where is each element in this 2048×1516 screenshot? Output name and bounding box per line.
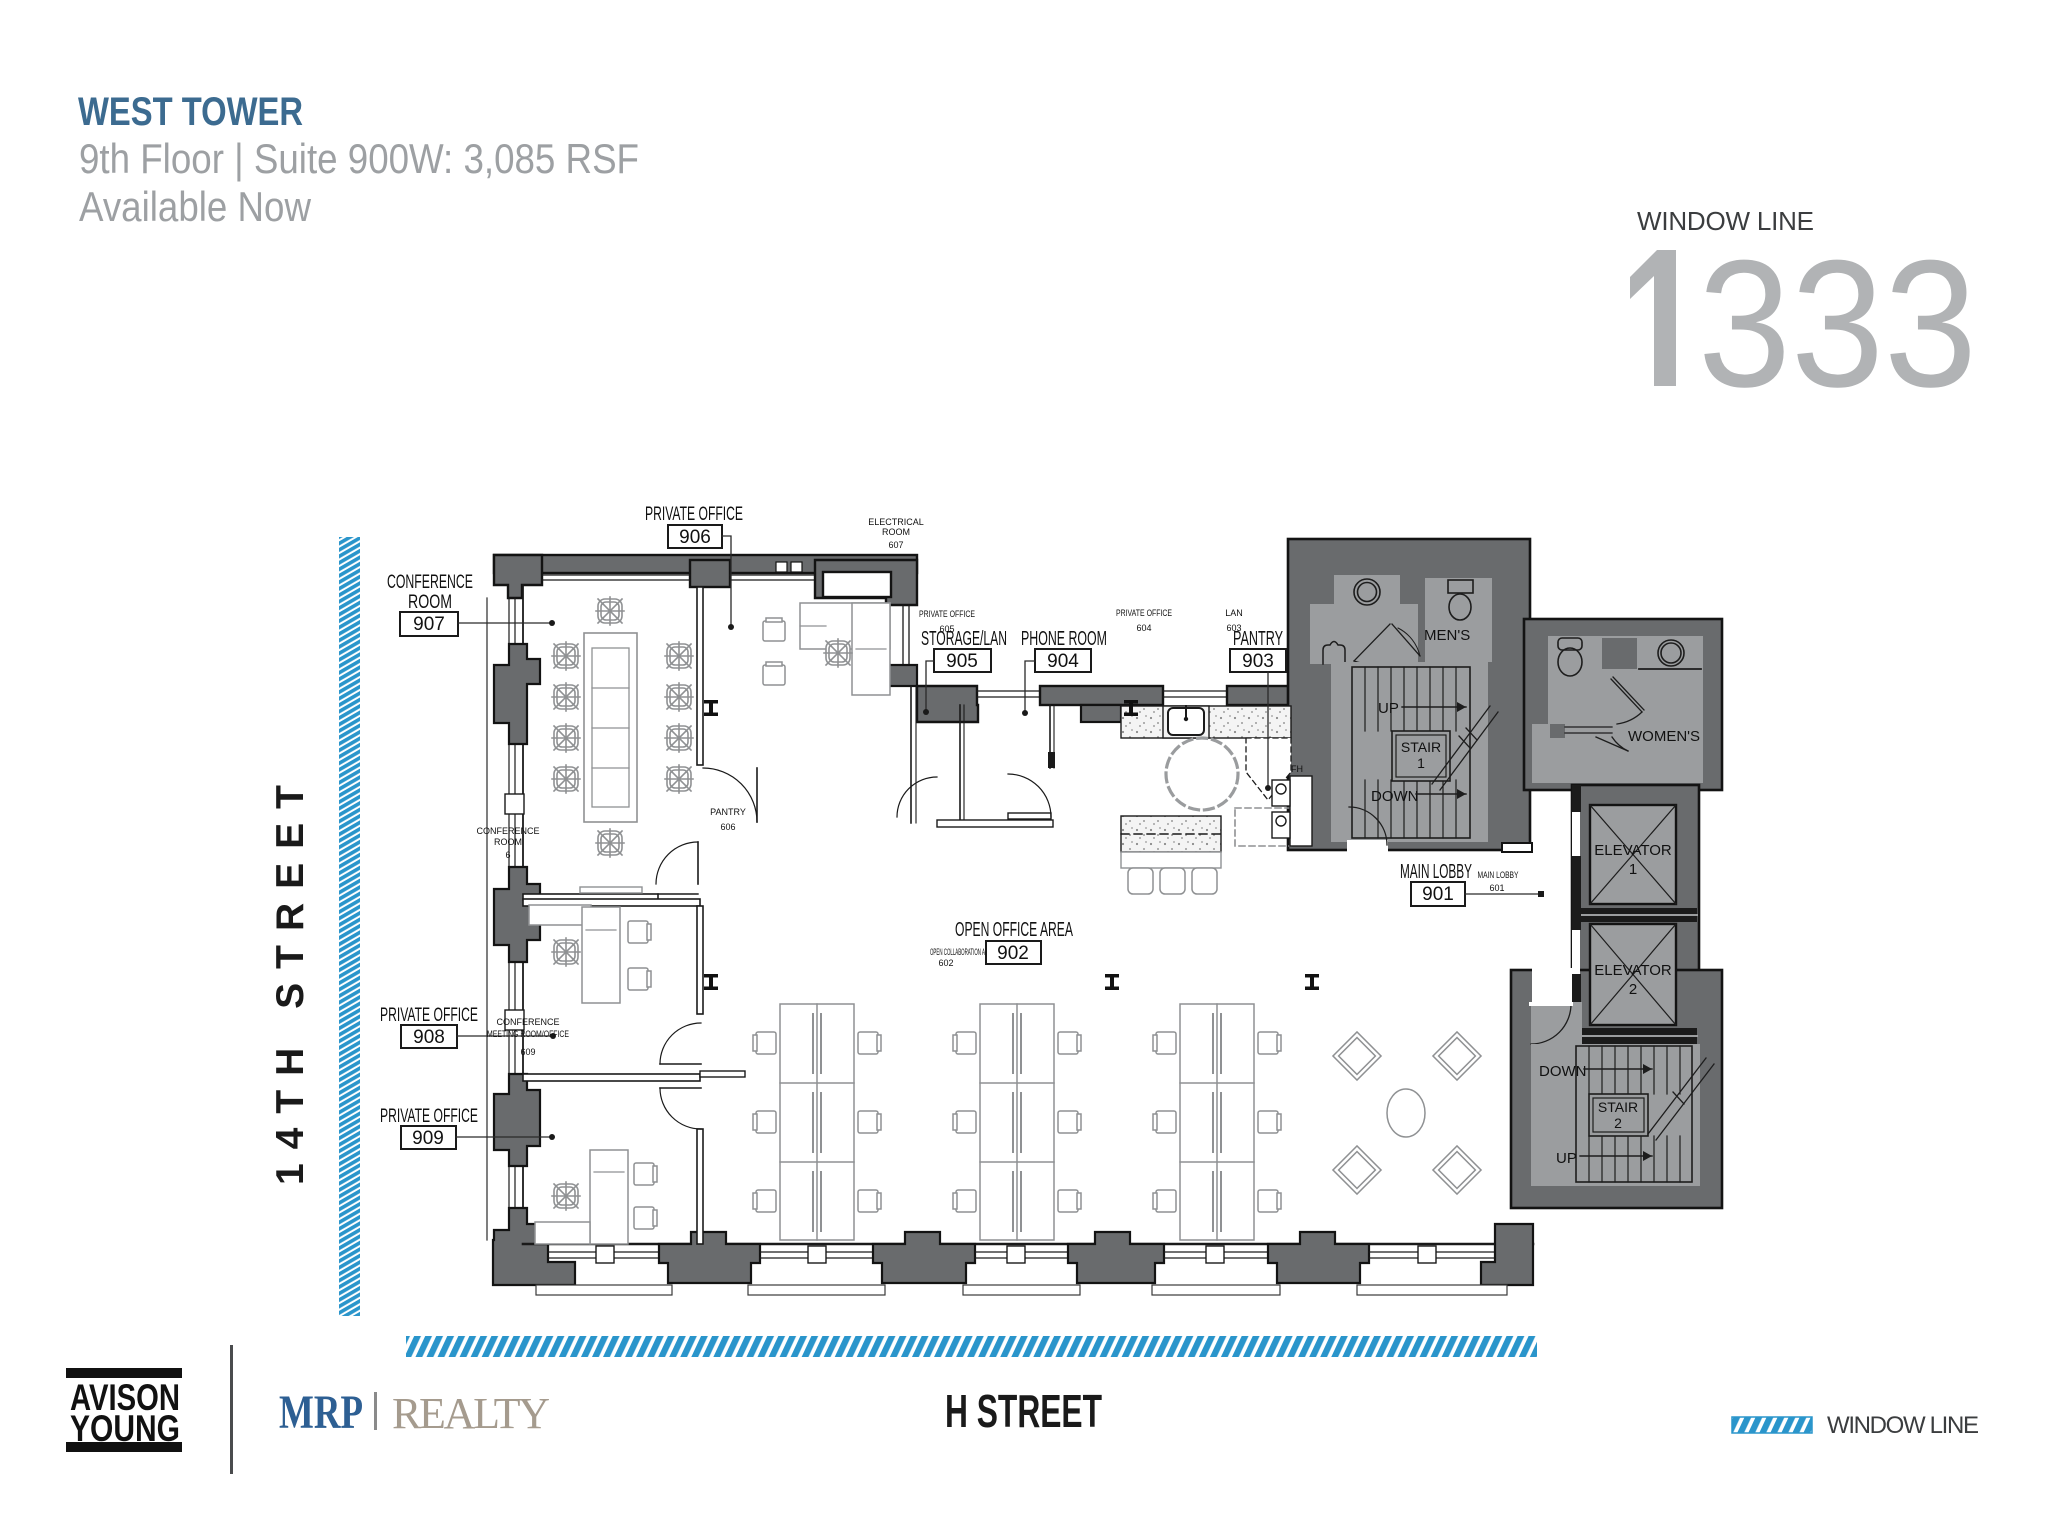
svg-text:606: 606 [720, 822, 735, 832]
svg-text:1: 1 [1417, 755, 1425, 771]
svg-text:MEETING ROOM/OFFICE: MEETING ROOM/OFFICE [487, 1029, 569, 1039]
svg-text:601: 601 [1489, 883, 1504, 893]
svg-text:PANTRY: PANTRY [710, 807, 746, 817]
svg-text:PANTRY: PANTRY [1233, 628, 1283, 650]
svg-text:ROOM: ROOM [408, 592, 452, 613]
svg-text:906: 906 [679, 527, 711, 548]
svg-text:908: 908 [413, 1027, 445, 1048]
svg-text:OPEN OFFICE AREA: OPEN OFFICE AREA [955, 919, 1073, 941]
svg-text:PRIVATE OFFICE: PRIVATE OFFICE [380, 1005, 478, 1026]
svg-text:FH: FH [1291, 764, 1303, 774]
svg-text:WEST TOWER: WEST TOWER [78, 90, 303, 134]
svg-text:9th Floor | Suite 900W: 3,085: 9th Floor | Suite 900W: 3,085 RSF [79, 135, 639, 182]
svg-text:STAIR: STAIR [1598, 1099, 1638, 1115]
svg-text:PRIVATE OFFICE: PRIVATE OFFICE [380, 1106, 478, 1127]
svg-text:ROOM: ROOM [882, 527, 910, 537]
svg-text:STORAGE/LAN: STORAGE/LAN [921, 628, 1007, 650]
svg-text:MRP: MRP [279, 1386, 363, 1439]
svg-text:ROOM: ROOM [494, 837, 522, 847]
svg-text:903: 903 [1242, 651, 1274, 672]
svg-text:602: 602 [938, 958, 953, 968]
svg-text:2: 2 [1629, 981, 1637, 998]
svg-text:DOWN: DOWN [1539, 1063, 1587, 1080]
svg-text:DOWN: DOWN [1371, 788, 1419, 805]
svg-text:607: 607 [888, 540, 903, 550]
svg-text:UP: UP [1556, 1150, 1577, 1167]
svg-text:OPEN COLLABORATION AREA: OPEN COLLABORATION AREA [930, 947, 994, 957]
svg-text:MAIN LOBBY: MAIN LOBBY [1400, 861, 1472, 883]
svg-text:STAIR: STAIR [1401, 739, 1441, 755]
svg-text:609: 609 [520, 1047, 535, 1057]
svg-text:REALTY: REALTY [392, 1389, 550, 1438]
svg-text:PRIVATE OFFICE: PRIVATE OFFICE [645, 504, 743, 525]
svg-text:Available Now: Available Now [79, 183, 312, 230]
svg-text:333: 333 [1698, 223, 1977, 425]
svg-text:CONFERENCE: CONFERENCE [496, 1017, 559, 1027]
svg-text:901: 901 [1422, 884, 1454, 905]
svg-text:CONFERENCE: CONFERENCE [476, 826, 539, 836]
svg-text:CONFERENCE: CONFERENCE [387, 572, 473, 593]
svg-text:WINDOW LINE: WINDOW LINE [1827, 1412, 1979, 1439]
svg-text:PRIVATE OFFICE: PRIVATE OFFICE [919, 609, 975, 619]
svg-text:ELECTRICAL: ELECTRICAL [868, 517, 924, 527]
svg-text:2: 2 [1614, 1115, 1622, 1131]
svg-text:907: 907 [413, 614, 445, 635]
svg-text:MAIN LOBBY: MAIN LOBBY [1478, 870, 1519, 880]
svg-text:905: 905 [946, 651, 978, 672]
svg-text:PHONE ROOM: PHONE ROOM [1021, 628, 1107, 650]
svg-text:604: 604 [1136, 623, 1151, 633]
svg-text:1: 1 [1629, 861, 1637, 878]
svg-text:LAN: LAN [1225, 608, 1243, 618]
svg-text:ELEVATOR: ELEVATOR [1594, 962, 1672, 979]
svg-text:6: 6 [505, 850, 510, 860]
svg-text:UP: UP [1378, 700, 1399, 717]
svg-text:909: 909 [412, 1128, 444, 1149]
svg-text:PRIVATE OFFICE: PRIVATE OFFICE [1116, 608, 1172, 618]
svg-text:904: 904 [1047, 651, 1079, 672]
svg-text:902: 902 [997, 943, 1029, 964]
svg-text:WOMEN'S: WOMEN'S [1628, 728, 1700, 745]
svg-text:MEN'S: MEN'S [1424, 627, 1470, 644]
svg-text:H STREET: H STREET [945, 1385, 1102, 1437]
svg-text:ELEVATOR: ELEVATOR [1594, 842, 1672, 859]
